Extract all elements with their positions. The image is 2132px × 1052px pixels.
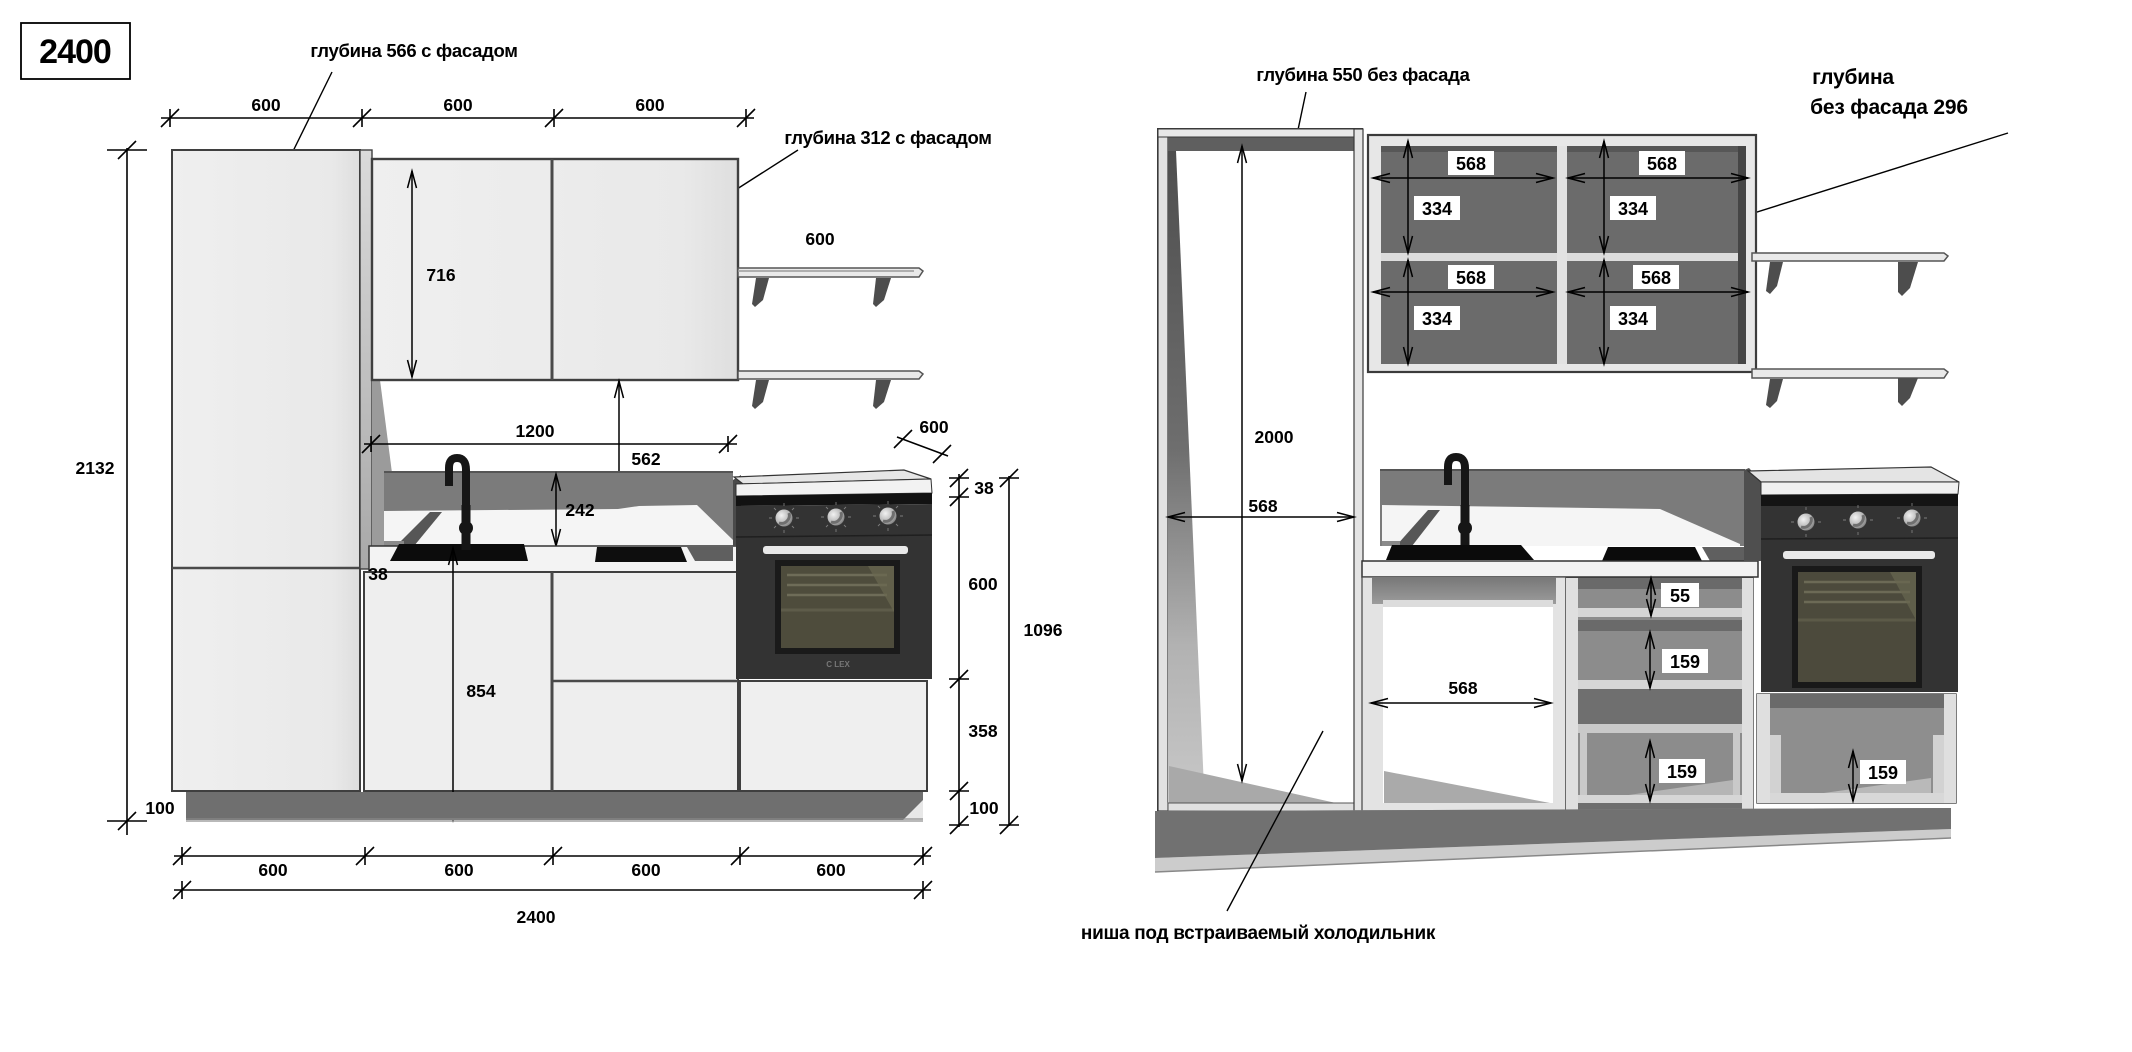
svg-text:2132: 2132 — [76, 458, 115, 478]
svg-text:334: 334 — [1618, 309, 1648, 329]
svg-text:600: 600 — [919, 417, 948, 437]
svg-text:600: 600 — [258, 860, 287, 880]
svg-text:C LEX: C LEX — [826, 660, 850, 669]
svg-text:600: 600 — [631, 860, 660, 880]
svg-text:600: 600 — [444, 860, 473, 880]
svg-text:без фасада 296: без фасада 296 — [1810, 96, 1968, 119]
svg-text:1200: 1200 — [516, 421, 555, 441]
svg-text:562: 562 — [631, 449, 660, 469]
svg-text:100: 100 — [145, 798, 174, 818]
svg-text:358: 358 — [968, 721, 997, 741]
svg-text:38: 38 — [368, 564, 388, 584]
svg-text:2000: 2000 — [1255, 427, 1294, 447]
svg-text:242: 242 — [565, 500, 594, 520]
svg-text:глубина 550 без фасада: глубина 550 без фасада — [1256, 64, 1470, 85]
svg-text:159: 159 — [1670, 652, 1700, 672]
svg-text:334: 334 — [1422, 199, 1452, 219]
svg-text:159: 159 — [1868, 763, 1898, 783]
svg-text:568: 568 — [1456, 268, 1486, 288]
svg-text:334: 334 — [1618, 199, 1648, 219]
svg-text:854: 854 — [466, 681, 495, 701]
svg-text:568: 568 — [1248, 496, 1277, 516]
svg-text:568: 568 — [1448, 678, 1477, 698]
svg-text:334: 334 — [1422, 309, 1452, 329]
svg-text:159: 159 — [1667, 762, 1697, 782]
svg-text:1096: 1096 — [1024, 620, 1063, 640]
svg-text:600: 600 — [816, 860, 845, 880]
svg-text:глубина: глубина — [1812, 66, 1894, 89]
svg-text:600: 600 — [251, 95, 280, 115]
svg-text:716: 716 — [426, 265, 455, 285]
svg-text:55: 55 — [1670, 586, 1690, 606]
svg-text:600: 600 — [968, 574, 997, 594]
svg-text:600: 600 — [443, 95, 472, 115]
svg-text:глубина 566 с фасадом: глубина 566 с фасадом — [310, 40, 517, 61]
svg-text:600: 600 — [805, 229, 834, 249]
svg-text:100: 100 — [969, 798, 998, 818]
svg-text:2400: 2400 — [517, 907, 556, 927]
svg-text:глубина 312 с фасадом: глубина 312 с фасадом — [784, 127, 991, 148]
svg-text:ниша под встраиваемый холодиль: ниша под встраиваемый холодильник — [1081, 923, 1436, 944]
svg-text:38: 38 — [974, 478, 994, 498]
svg-text:2400: 2400 — [39, 33, 111, 71]
svg-text:568: 568 — [1647, 154, 1677, 174]
svg-text:568: 568 — [1456, 154, 1486, 174]
svg-text:600: 600 — [635, 95, 664, 115]
svg-text:568: 568 — [1641, 268, 1671, 288]
